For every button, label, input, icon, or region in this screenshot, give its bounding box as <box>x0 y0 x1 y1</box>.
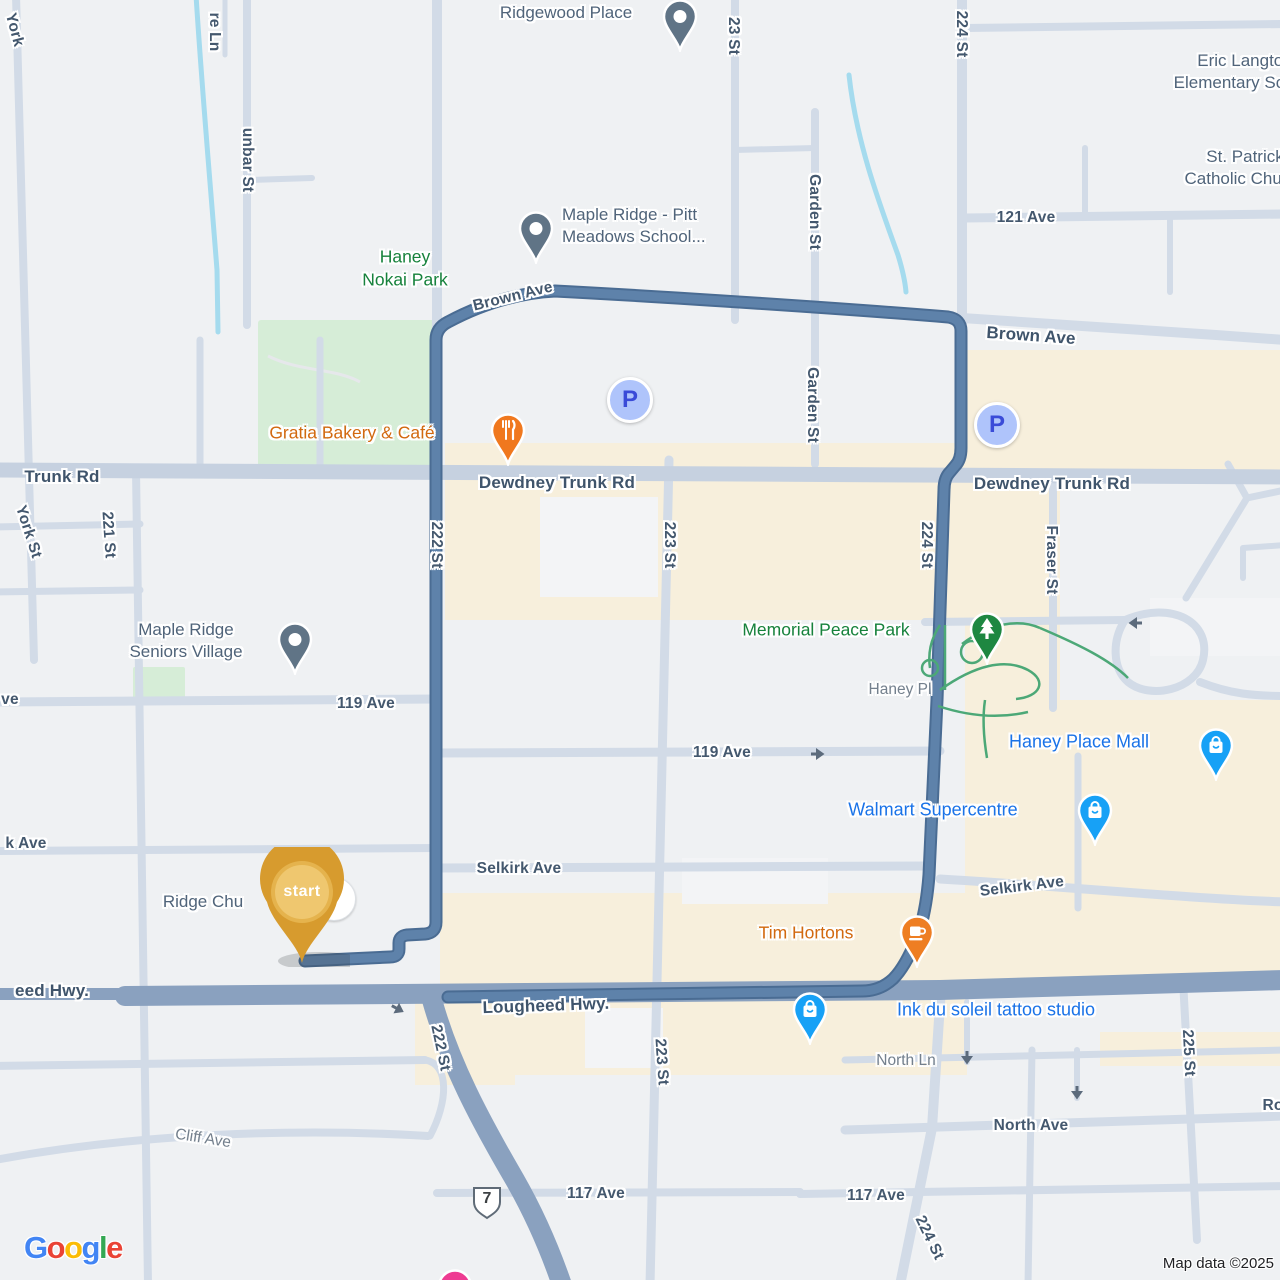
google-logo-letter: G <box>24 1230 47 1265</box>
google-logo-letter: o <box>47 1230 64 1265</box>
google-logo[interactable]: Google <box>24 1230 122 1266</box>
google-logo-letter: l <box>99 1230 106 1265</box>
park-areas <box>133 320 436 699</box>
google-map-viewport[interactable]: Yorkunbar Stre LnRidgewood Place23 St224… <box>0 0 1280 1280</box>
map-attribution: Map data ©2025 <box>1163 1255 1274 1272</box>
google-logo-letter: o <box>64 1230 81 1265</box>
minor-roads <box>0 0 1280 1280</box>
highway-7-shield: 7 <box>471 1186 503 1220</box>
map-canvas <box>0 0 1280 1280</box>
google-logo-letter: e <box>106 1230 122 1265</box>
road-dewdney-trunk <box>0 470 1280 477</box>
google-logo-letter: g <box>82 1230 99 1265</box>
creeks <box>196 0 906 332</box>
highway-shield-number: 7 <box>471 1190 503 1208</box>
